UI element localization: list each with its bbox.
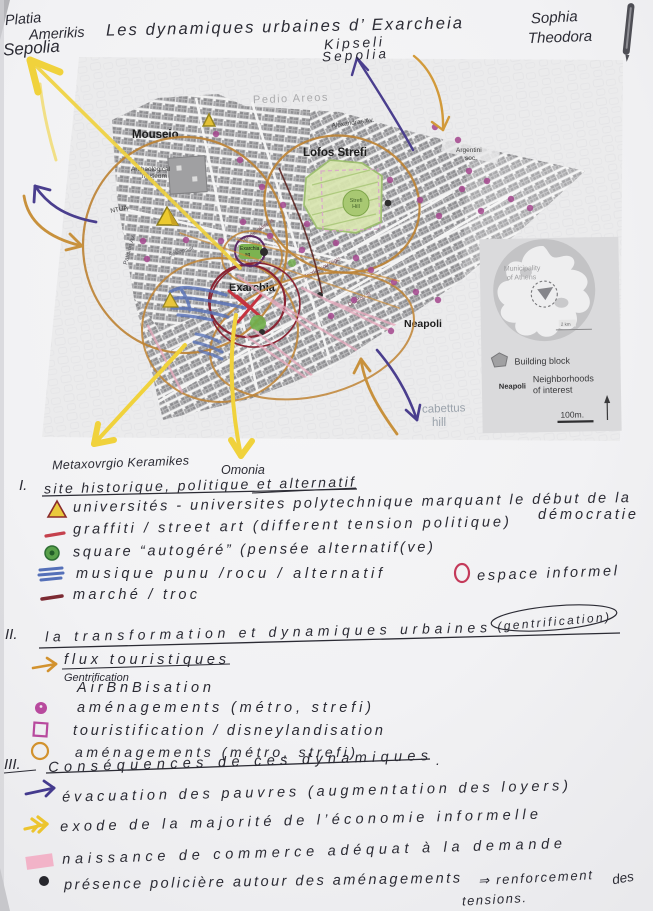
svg-text:Neapoli: Neapoli bbox=[404, 318, 442, 330]
svg-text:Lofos Strefi: Lofos Strefi bbox=[303, 147, 367, 159]
svg-text:marché / troc: marché / troc bbox=[73, 587, 198, 603]
svg-text:Sophia: Sophia bbox=[530, 8, 578, 27]
svg-text:III.: III. bbox=[4, 756, 21, 773]
svg-text:Argentini: Argentini bbox=[456, 147, 482, 154]
svg-text:touristification / disneylandi: touristification / disneylandisation bbox=[73, 723, 383, 739]
svg-text:Sepolia: Sepolia bbox=[2, 37, 60, 60]
svg-text:Mouseio: Mouseio bbox=[132, 129, 179, 141]
svg-text:Building block: Building block bbox=[514, 356, 570, 367]
svg-text:of interest: of interest bbox=[533, 385, 573, 396]
svg-text:100m.: 100m. bbox=[560, 409, 584, 419]
svg-text:I.: I. bbox=[19, 477, 27, 494]
svg-text:Neighborhoods: Neighborhoods bbox=[533, 373, 595, 384]
svg-text:.: . bbox=[436, 752, 440, 768]
svg-text:Municipality: Municipality bbox=[504, 265, 541, 273]
svg-text:Hill: Hill bbox=[352, 204, 360, 210]
svg-text:2 km: 2 km bbox=[561, 322, 571, 327]
svg-text:cabettus: cabettus bbox=[422, 402, 466, 416]
svg-text:II.: II. bbox=[5, 626, 18, 643]
svg-text:soc.: soc. bbox=[465, 155, 477, 162]
svg-text:hill: hill bbox=[432, 417, 446, 429]
svg-text:Neapoli: Neapoli bbox=[499, 381, 526, 390]
svg-text:of Athens: of Athens bbox=[507, 274, 537, 282]
svg-text:démocratie: démocratie bbox=[538, 507, 636, 523]
svg-text:Theodora: Theodora bbox=[528, 28, 593, 47]
